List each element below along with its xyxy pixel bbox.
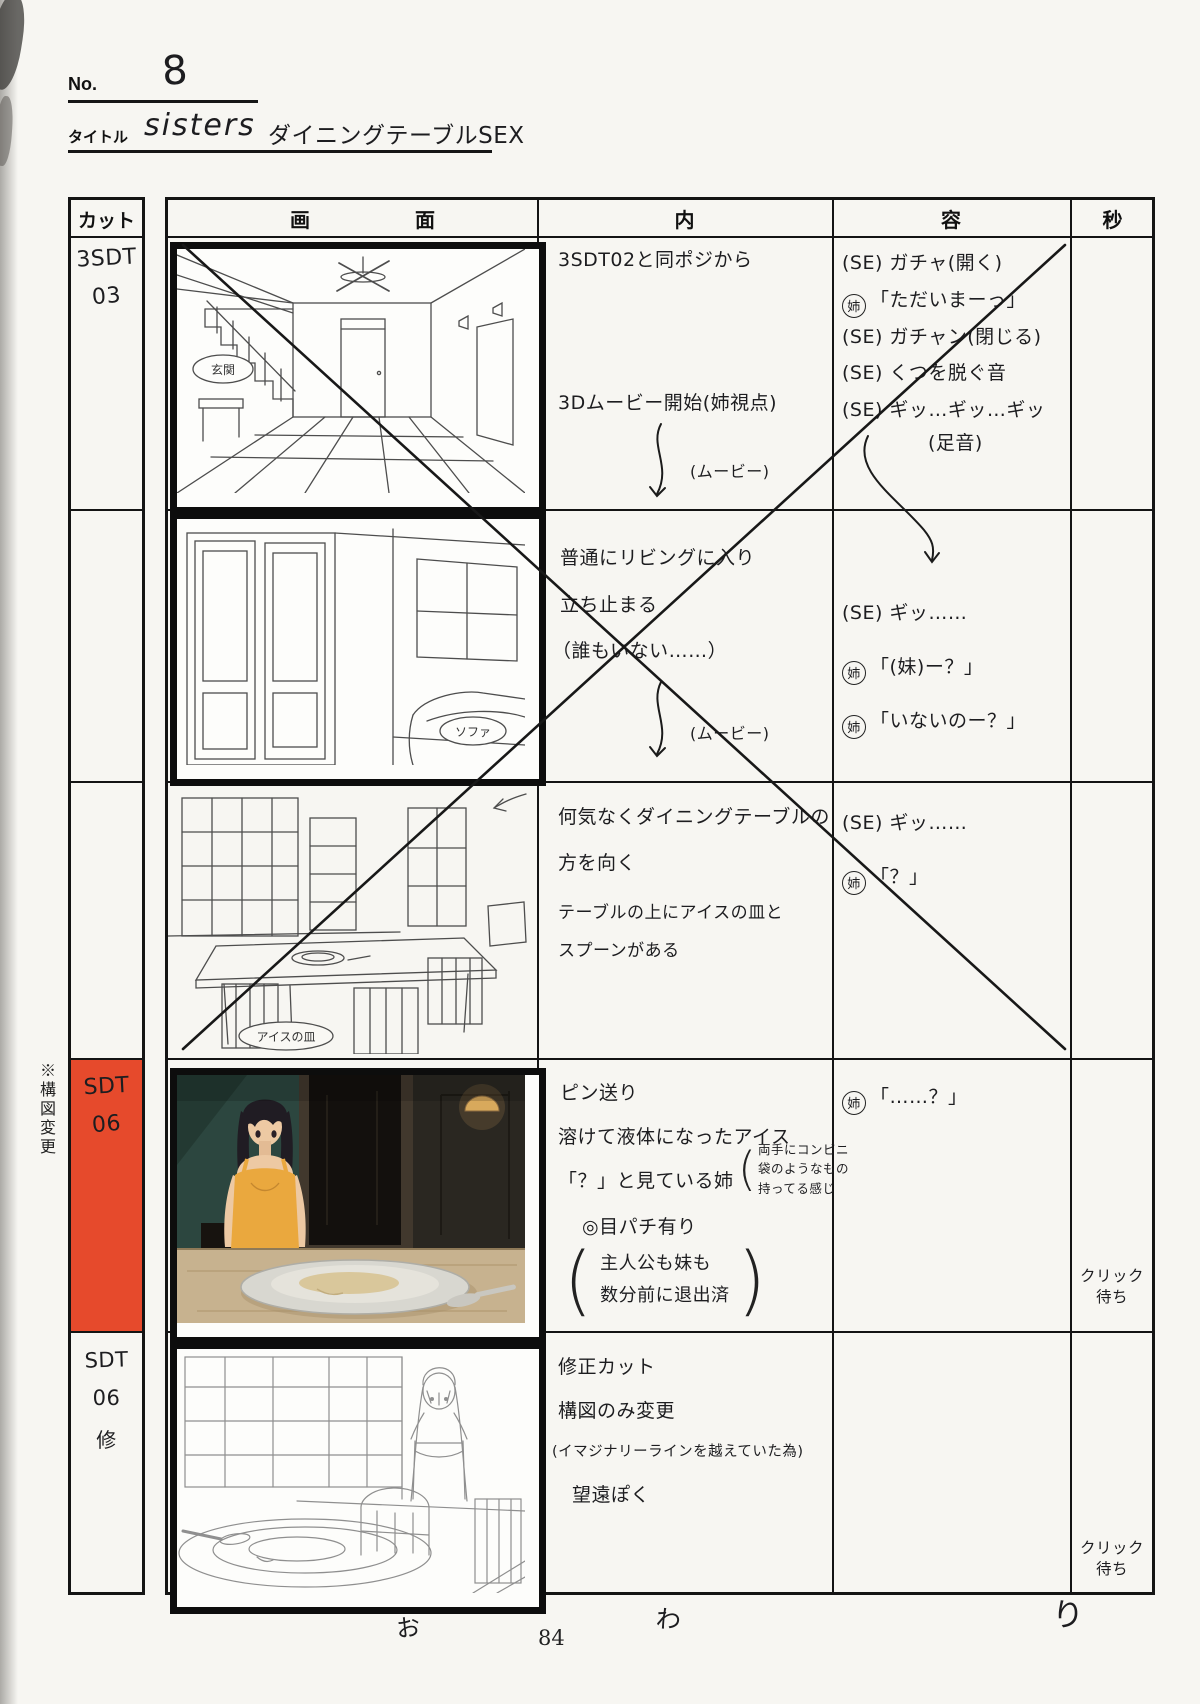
revised-cut-sketch [177,1349,525,1593]
action-note: スプーンがある [558,936,680,961]
side-note: ※構図変更 [34,1062,58,1242]
action-note: ピン送り [560,1078,638,1105]
storyboard-panel-5 [170,1342,546,1614]
storyboard-panel-2: ソファ [170,512,546,786]
storyboard-panel-3: アイスの皿 [168,786,534,1054]
close-paren: ) [738,1242,766,1318]
sound-line: (SE) くつを脱ぐ音 [842,358,1006,385]
sound-line: 姉「(妹)ー？」 [842,652,983,685]
action-note: テーブルの上にアイスの皿と [558,898,783,923]
scan-edge-shadow [0,0,18,1704]
sound-line: 姉「ただいまーっ」 [842,285,1026,318]
no-underline [68,100,258,103]
sound-line: (足音) [928,428,983,455]
wait-for-click-note: クリック待ち [1076,1538,1148,1580]
hallway-sketch: 玄関 [177,249,525,493]
sketch-bubble-label: アイスの皿 [256,1030,315,1044]
sound-line: 姉「いないのー？」 [842,706,1026,739]
sound-line: 姉「？」 [842,862,929,895]
header-outer: 容 [832,204,1070,233]
header-screen: 画 [290,204,310,233]
cut-header: カット [68,206,145,233]
no-label: No. [68,74,97,95]
open-paren: ( [564,1242,592,1318]
sound-line: (SE) ギッ…… [842,598,967,625]
action-note: 「？」と見ている姉 [558,1166,734,1193]
ending-char: り [1051,1589,1086,1637]
cut-label: SDT [70,1347,144,1374]
sound-line: (SE) ガチャン(閉じる) [842,322,1042,349]
action-note: （誰もいない……） [552,636,727,663]
header-screen: 面 [415,204,435,233]
sound-line: 姉「……？」 [842,1082,968,1115]
action-note: 3SDT02と同ポジから [558,245,753,272]
action-note: ◎目パチ有り [582,1212,697,1239]
sound-line: (SE) ガチャ(開く) [842,248,1003,275]
action-note: 何気なくダイニングテーブルの [558,802,830,829]
action-note: 望遠ぽく [572,1480,650,1507]
sound-line: (SE) ギッ…… [842,808,967,835]
sound-line: (SE) ギッ…ギッ…ギッ [842,395,1045,422]
movie-transition-label: (ムービー) [690,458,770,482]
action-note: (イマジナリーラインを越えていた為) [552,1440,804,1461]
action-note: 普通にリビングに入り [560,543,755,570]
sketch-bubble-label: 玄関 [211,362,235,377]
dining-room-sketch: アイスの皿 [168,786,534,1054]
cut-label: 06 [70,1386,143,1410]
living-room-sketch: ソファ [177,519,525,765]
cut-label: SDT [69,1072,143,1101]
storyboard-panel-1: 玄関 [170,242,546,514]
title-label: タイトル [68,126,128,147]
cut-label: 3SDT [69,244,143,273]
speaker-circle: 姉 [842,871,866,895]
color-scene [177,1075,525,1323]
hands-note: ( 両手にコンビニ 袋のようなもの 持ってる感じ [738,1140,849,1198]
action-note: 方を向く [558,848,636,875]
ending-char: わ [655,1599,683,1637]
action-note: 3Dムービー開始(姉視点) [558,388,777,415]
page-number: 84 [538,1626,565,1650]
title-latin: sisters [144,108,256,143]
open-paren: ( [738,1146,756,1192]
sketch-bubble-label: ソファ [455,725,491,739]
title-kana: ダイニングテーブルSEX [268,116,525,150]
header-inner: 内 [537,204,832,233]
action-note: 修正カット [558,1352,656,1379]
cut-highlight-red [71,1060,142,1331]
speaker-circle: 姉 [842,715,866,739]
movie-transition-label: (ムービー) [690,720,770,744]
no-value: 8 [160,47,189,95]
wait-for-click-note: クリック待ち [1076,1266,1148,1308]
speaker-circle: 姉 [842,661,866,685]
speaker-circle: 姉 [842,294,866,318]
cut-label: 修 [70,1424,143,1453]
action-note: 立ち止まる [560,590,658,617]
speaker-circle: 姉 [842,1091,866,1115]
header-seconds: 秒 [1070,204,1155,233]
ending-char: お [394,1607,422,1644]
storyboard-page: No. 8 タイトル sisters ダイニングテーブルSEX ※構図変更 カッ… [0,0,1200,1704]
storyboard-panel-4 [170,1068,546,1344]
title-underline [68,150,492,153]
absent-characters-note: ( 主人公も妹も 数分前に退出済 ) [564,1244,766,1316]
action-note: 構図のみ変更 [558,1396,675,1423]
